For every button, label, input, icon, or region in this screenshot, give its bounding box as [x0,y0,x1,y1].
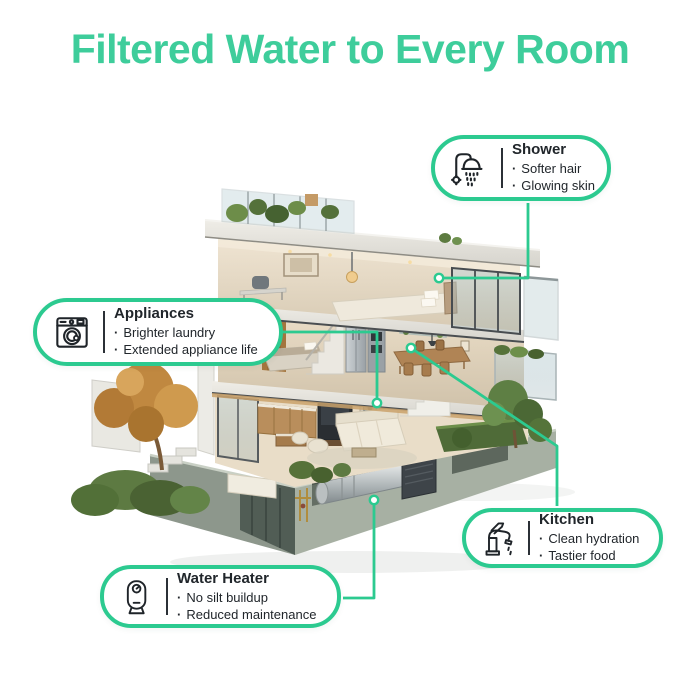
benefit-item: ·No silt buildup [177,589,316,606]
faucet-icon [479,518,519,558]
benefit-list: ·Clean hydration ·Tastier food [539,530,639,564]
callout-title: Kitchen [539,511,639,530]
callout-kitchen: Kitchen ·Clean hydration ·Tastier food [462,508,663,568]
benefit-item: ·Tastier food [539,547,639,564]
benefit-item: ·Softer hair [512,160,595,177]
callout-water-heater: Water Heater ·No silt buildup ·Reduced m… [100,565,341,628]
divider [501,148,503,188]
callout-title: Water Heater [177,570,316,589]
kitchen-point [407,344,415,352]
appliances-point [373,399,381,407]
benefit-list: ·Softer hair ·Glowing skin [512,160,595,194]
divider [528,521,530,555]
infographic-canvas: Filtered Water to Every Room [0,0,700,700]
benefit-item: ·Extended appliance life [114,341,258,358]
water-heater-icon [117,577,157,617]
benefit-list: ·No silt buildup ·Reduced maintenance [177,589,316,623]
benefit-item: ·Glowing skin [512,177,595,194]
benefit-list: ·Brighter laundry ·Extended appliance li… [114,324,258,358]
water-heater-point [370,496,378,504]
callout-title: Appliances [114,305,258,324]
washing-machine-icon [50,310,94,354]
callout-shower: Shower ·Softer hair ·Glowing skin [431,135,611,201]
benefit-item: ·Clean hydration [539,530,639,547]
callout-title: Shower [512,141,595,160]
divider [103,311,105,353]
callout-appliances: Appliances ·Brighter laundry ·Extended a… [33,298,283,366]
benefit-item: ·Reduced maintenance [177,606,316,623]
divider [166,578,168,615]
benefit-item: ·Brighter laundry [114,324,258,341]
shower-icon [448,146,492,190]
shower-point [435,274,443,282]
